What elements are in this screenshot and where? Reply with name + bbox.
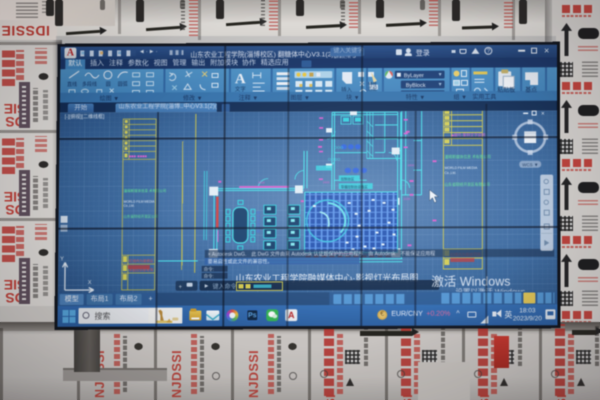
- svg-text:►: ►: [204, 284, 210, 290]
- svg-text:WORLD FILM MEDIA: WORLD FILM MEDIA: [444, 166, 478, 170]
- svg-text:ByLayer: ByLayer: [404, 73, 424, 79]
- svg-text:1800: 1800: [408, 163, 415, 167]
- svg-text:×: ×: [541, 111, 545, 117]
- svg-text:多段线: 多段线: [82, 81, 97, 88]
- svg-text:2100: 2100: [404, 197, 411, 201]
- svg-text:潘姆斯媒体信息 术有限公司: 潘姆斯媒体信息 术有限公司: [124, 188, 167, 193]
- svg-text:山东省财经开发区公司: 山东省财经开发区公司: [123, 213, 158, 218]
- svg-text:Y: Y: [60, 256, 64, 262]
- svg-text:3600: 3600: [258, 181, 265, 185]
- svg-text:圆弧: 圆弧: [118, 81, 128, 88]
- svg-text:2400: 2400: [323, 180, 330, 184]
- svg-text:OOO: OOO: [334, 145, 343, 150]
- svg-text:+: +: [179, 285, 183, 291]
- svg-text:红线内为装修区: 红线内为装修区: [129, 258, 154, 263]
- svg-text:ByBlock: ByBlock: [406, 83, 426, 89]
- svg-text:山东省财经开发区有限公司: 山东省财经开发区有限公司: [444, 182, 490, 187]
- svg-text:命令:: 命令:: [204, 273, 214, 280]
- svg-text:OOOO: OOOO: [328, 157, 340, 162]
- svg-text:Co.,Ltd.: Co.,Ltd.: [444, 171, 456, 175]
- svg-text:潘姆斯媒体信息 术有限公司: 潘姆斯媒体信息 术有限公司: [444, 154, 491, 159]
- svg-text:控制台区: 控制台区: [341, 176, 355, 181]
- svg-text:■■■·■■■■: ■■■·■■■■: [129, 153, 148, 158]
- svg-text:圆: 圆: [106, 82, 111, 88]
- svg-text:直线: 直线: [67, 81, 77, 88]
- svg-text:WCS ▼: WCS ▼: [522, 162, 538, 167]
- svg-text:Co.,Ltd.: Co.,Ltd.: [123, 204, 134, 208]
- svg-text:oooooo: oooooo: [255, 211, 260, 233]
- svg-text:导播控制台设备区: 导播控制台设备区: [341, 184, 369, 189]
- svg-text:A: A: [235, 71, 246, 87]
- svg-text:命令:: 命令:: [204, 266, 214, 273]
- svg-text:X: X: [88, 280, 92, 286]
